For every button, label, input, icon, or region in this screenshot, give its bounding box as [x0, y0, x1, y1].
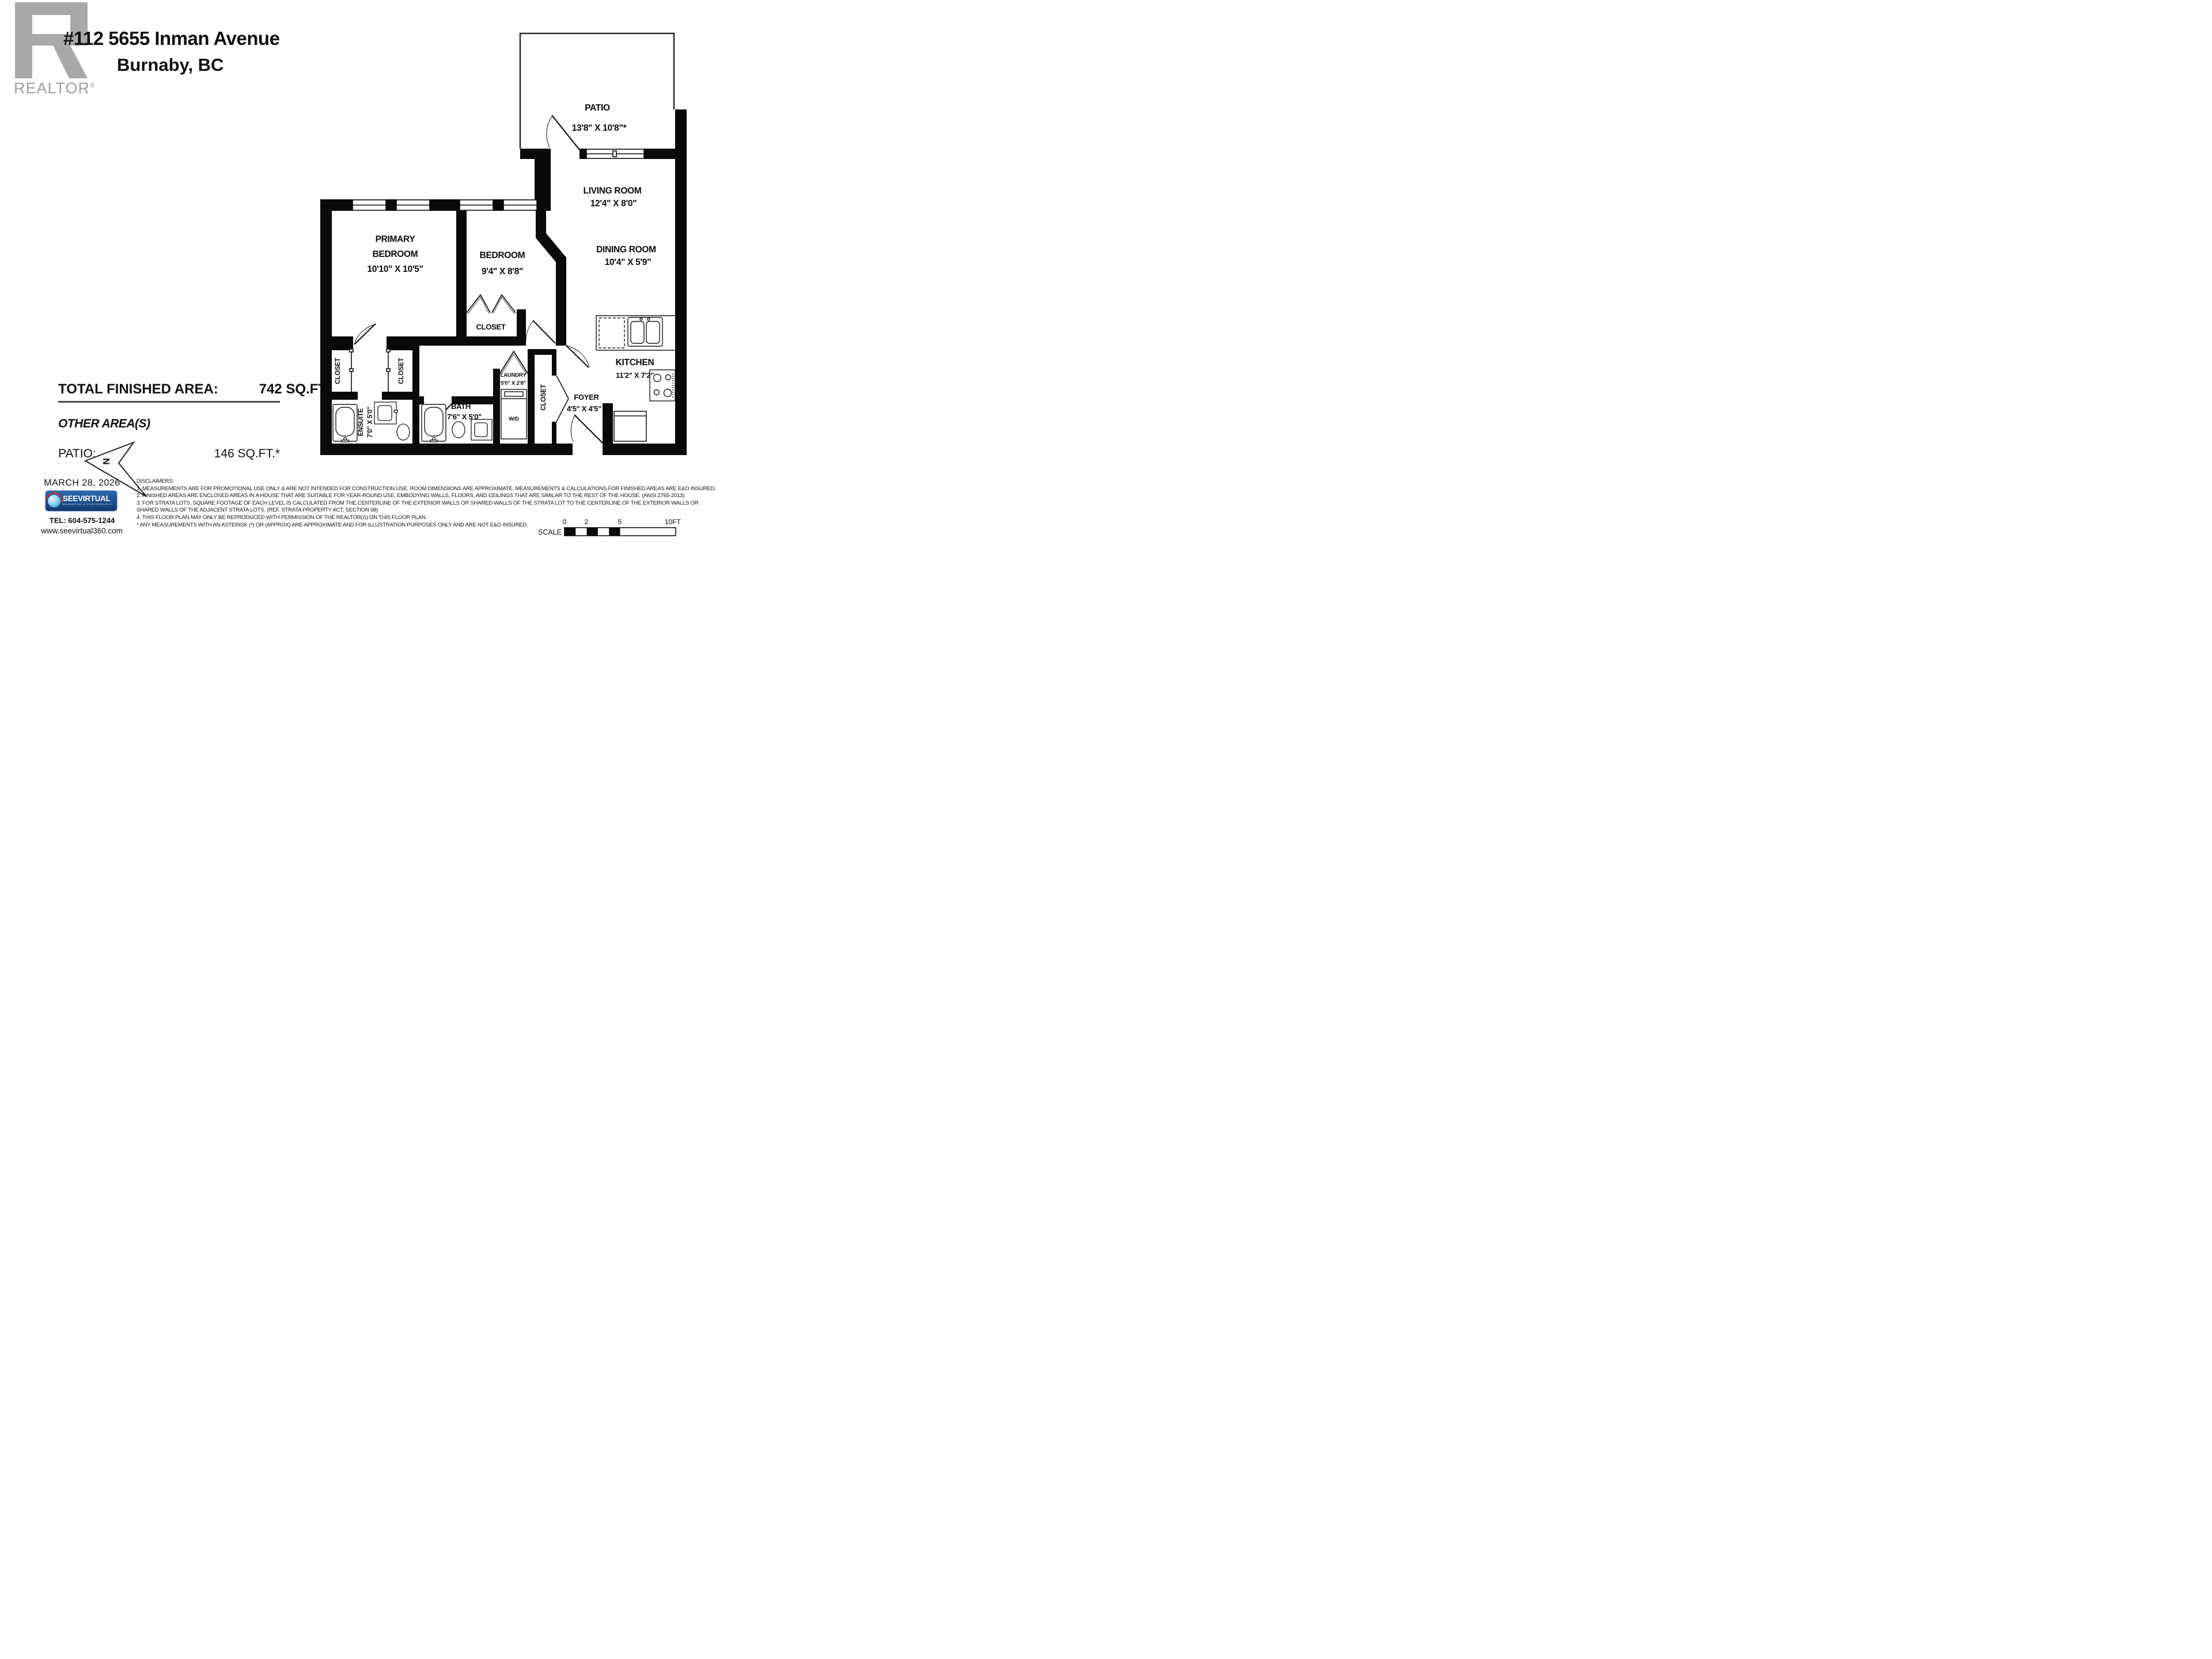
website-url: www.seevirtual360.com — [30, 527, 134, 535]
room-dims-patio: 13'8" X 10'8"* — [572, 123, 627, 133]
ensuite-vanity-icon — [374, 402, 397, 424]
room-label-laundry: LAUNDRY — [501, 372, 527, 378]
ensuite-toilet-icon — [397, 424, 410, 440]
dishwasher-icon — [599, 318, 624, 348]
room-dims-kitchen: 11'2" X 7'2" — [616, 371, 654, 380]
room-dims-ensuite: 7'0" X 5'0" — [367, 407, 374, 438]
room-label-living: LIVING ROOM — [584, 186, 642, 196]
room-label-foyer: FOYER — [574, 393, 599, 402]
closet-sliding-doors — [350, 349, 390, 392]
window-bedroom-2 — [503, 200, 537, 210]
bath-tub-icon — [422, 404, 446, 442]
kitchen-sink-icon — [628, 317, 662, 346]
room-label-ensuite: ENSUITE — [358, 408, 365, 436]
window-primary-1 — [353, 200, 386, 210]
room-label-patio: PATIO — [585, 103, 610, 113]
room-dims-living: 12'4" X 8'0" — [590, 199, 637, 209]
room-label-closet-1: CLOSET — [335, 358, 342, 384]
disclaimer-line: SHARED WALLS OF THE ADJACENT STRATA LOTS… — [137, 507, 736, 514]
seevirtual-orb-icon — [48, 495, 60, 507]
window-living-patio — [586, 149, 644, 158]
foyer-closet-doors — [556, 376, 569, 422]
bath-vanity-icon — [471, 419, 492, 440]
seevirtual-wordmark: SEEVIRTUAL — [63, 495, 112, 503]
disclaimer-line: 1. MEASUREMENTS ARE FOR PROMOTIONAL USE … — [137, 486, 736, 493]
label-washer-dryer: W/D — [509, 416, 519, 422]
room-dims-foyer: 4'5" X 4'5" — [567, 404, 601, 413]
room-label-closet-2: CLOSET — [398, 358, 405, 384]
room-label-bedroom-closet: CLOSET — [476, 323, 506, 331]
disclaimer-line: 4. THIS FLOOR PLAN MAY ONLY BE REPRODUCE… — [137, 514, 736, 522]
room-dims-laundry: 5'0" X 2'8" — [501, 380, 526, 387]
phone-number: TEL: 604-575-1244 — [35, 516, 130, 525]
room-label-foyer-closet: CLOSET — [540, 384, 547, 411]
disclaimer-line: * ANY MEASUREMENTS WITH AN ASTERISK (*) … — [137, 522, 736, 529]
room-dims-primary: 10'10" X 10'5" — [367, 264, 423, 274]
scale-label: SCALE — [521, 528, 562, 536]
plan-date: MARCH 28, 2026 — [35, 478, 130, 488]
bedroom-closet-doors — [467, 295, 516, 314]
room-dims-dining: 10'4" X 5'9" — [605, 257, 652, 267]
fridge-icon — [614, 411, 646, 441]
laundry-bifold-door — [500, 351, 528, 374]
disclaimers-title: DISCLAIMERS: — [137, 478, 736, 486]
washer-dryer-icon — [501, 389, 527, 439]
disclaimers-block: DISCLAIMERS: 1. MEASUREMENTS ARE FOR PRO… — [137, 478, 736, 529]
entry-door — [571, 415, 603, 443]
ensuite-corridor-door — [354, 324, 376, 344]
seevirtual-logo: SEEVIRTUAL MARKETING & PHOTOGRAPHY — [45, 490, 118, 512]
bath-toilet-icon — [452, 422, 465, 438]
room-label-dining: DINING ROOM — [596, 245, 656, 255]
window-primary-2 — [396, 200, 430, 210]
room-label-bedroom: BEDROOM — [480, 251, 525, 260]
window-bedroom-1 — [460, 200, 493, 210]
floor-plan: PATIO 13'8" X 10'8"* LIVING ROOM 12'4" X… — [0, 0, 737, 553]
room-label-primary-2: BEDROOM — [373, 249, 418, 259]
ensuite-tub-icon — [333, 404, 357, 442]
north-letter: N — [102, 458, 112, 465]
room-label-bath: BATH — [451, 402, 471, 411]
seevirtual-tagline: MARKETING & PHOTOGRAPHY — [63, 504, 112, 507]
room-label-kitchen: KITCHEN — [616, 358, 654, 368]
room-label-primary-1: PRIMARY — [376, 234, 416, 244]
room-dims-bath: 7'6" X 5'0" — [447, 412, 482, 421]
bedroom-entry-door — [526, 320, 555, 343]
disclaimer-line: 3. FOR STRATA LOTS, SQUARE FOOTAGE OF EA… — [137, 500, 736, 507]
hall-door — [566, 346, 589, 368]
disclaimer-line: 2. FINISHED AREAS ARE ENCLOSED AREAS IN … — [137, 493, 736, 500]
room-dims-bedroom: 9'4" X 8'8" — [482, 267, 523, 276]
